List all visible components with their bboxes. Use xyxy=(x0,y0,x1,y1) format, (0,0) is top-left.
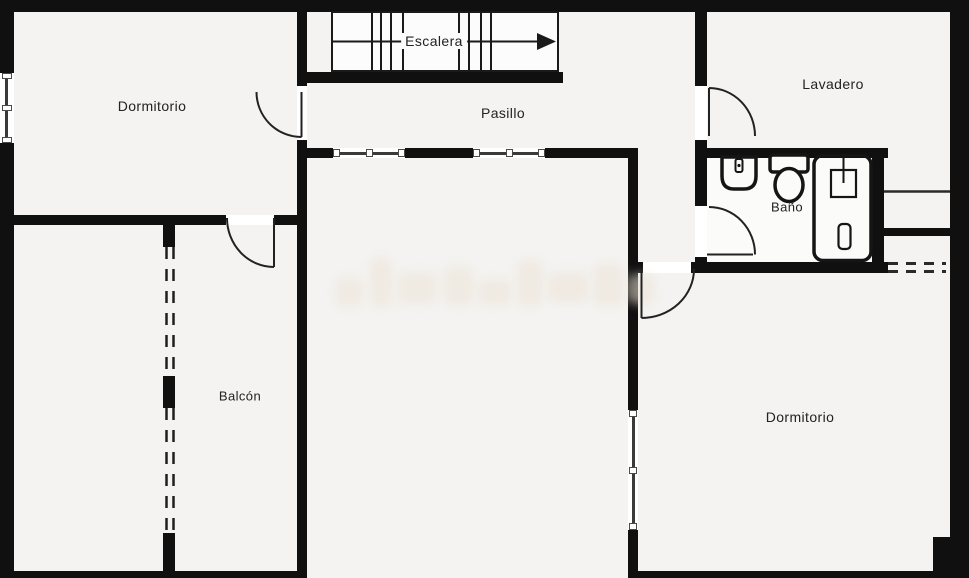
door-bano xyxy=(707,207,755,255)
door-dormitorio-1 xyxy=(257,92,302,137)
door-arc xyxy=(642,269,695,318)
room-label-pasillo: Pasillo xyxy=(481,105,525,121)
door-arc xyxy=(709,207,755,255)
room-label-bano: Baño xyxy=(771,200,803,215)
room-label-escalera: Escalera xyxy=(401,33,467,49)
room-label-dormitorio-1: Dormitorio xyxy=(118,98,187,114)
door-lavadero xyxy=(709,88,755,136)
door-arc xyxy=(227,218,274,267)
shower-icon xyxy=(814,155,871,261)
door-dormitorio-2 xyxy=(642,269,695,318)
balcony-divider-dashed xyxy=(167,247,174,533)
floor-plan: Dormitorio Escalera Pasillo Lavadero Bañ… xyxy=(0,0,969,578)
room-label-balcon: Balcón xyxy=(219,389,261,404)
room-label-dormitorio-2: Dormitorio xyxy=(766,409,835,425)
door-arc xyxy=(257,92,302,137)
shaft-dashed-opening xyxy=(888,264,946,272)
staircase-arrow-icon xyxy=(537,33,556,50)
door-arc xyxy=(709,88,755,136)
toilet-icon xyxy=(770,155,808,202)
sink-icon xyxy=(722,157,756,189)
room-label-lavadero: Lavadero xyxy=(802,76,864,92)
door-balcon xyxy=(227,218,274,267)
